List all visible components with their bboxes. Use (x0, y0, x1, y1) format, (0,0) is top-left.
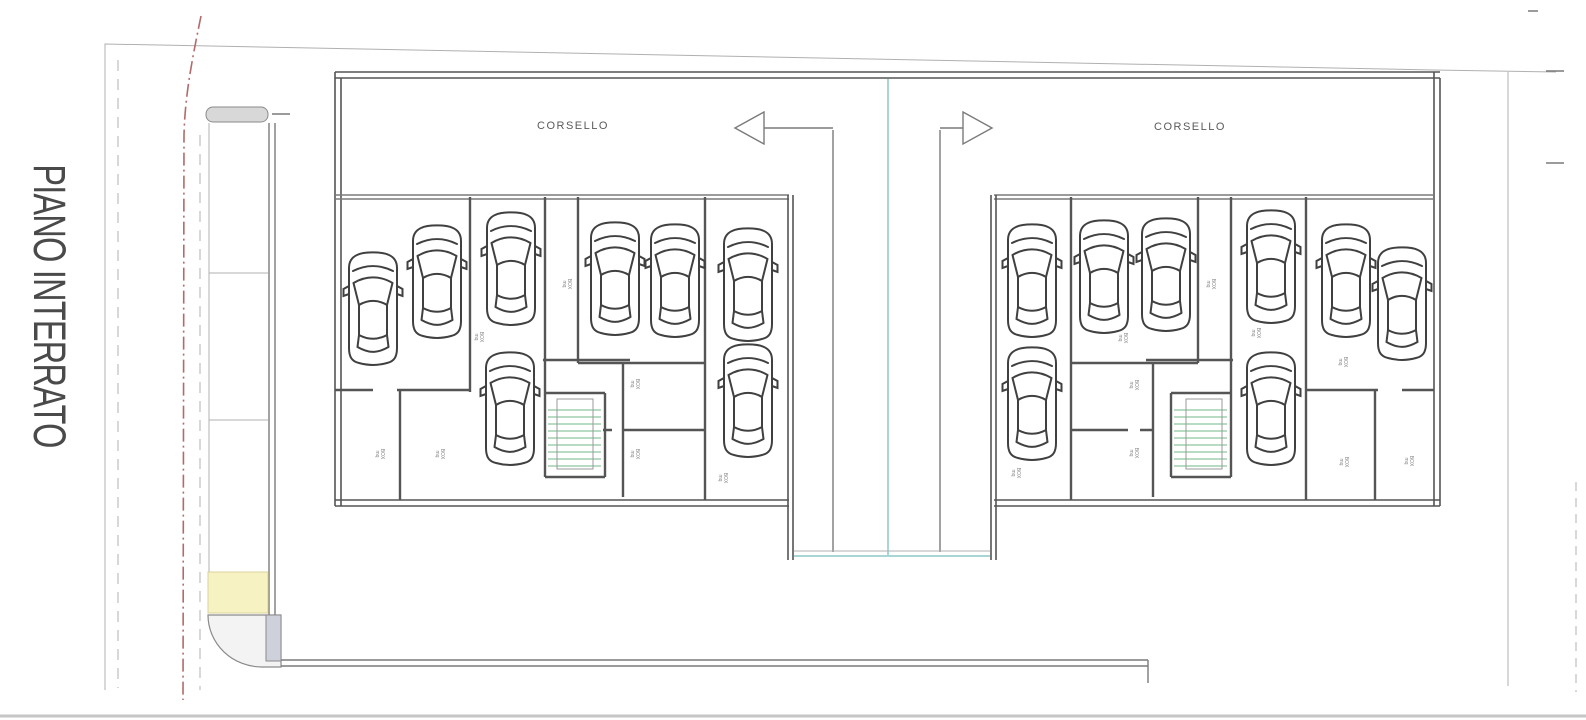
parked-car (408, 225, 467, 338)
parking-box-label: BOXmq (1338, 451, 1348, 473)
floor-plan-drawing (0, 0, 1586, 720)
parked-car (344, 252, 403, 365)
parking-box-label: BOXmq (1337, 351, 1347, 373)
parked-car (1242, 352, 1301, 465)
central-ramp (735, 79, 996, 560)
yellow-area (208, 572, 268, 613)
parking-box-label: BOXmq (473, 326, 483, 348)
red-dashdot-boundary (183, 16, 201, 700)
staircase-right (1171, 393, 1231, 477)
parked-car (481, 352, 540, 465)
parking-box-label: BOXmq (1010, 462, 1020, 484)
ramp-centerline (794, 79, 990, 556)
parked-car (719, 344, 778, 457)
parked-car (1242, 210, 1301, 323)
parked-car (719, 228, 778, 341)
parked-car (1075, 220, 1134, 333)
parked-car (586, 222, 645, 335)
floorplan-canvas: PIANO INTERRATO CORSELLO CORSELLO BOXmqB… (0, 0, 1586, 720)
parked-car (1317, 224, 1376, 337)
ramp-arrow-left (735, 112, 833, 144)
parking-box-label: BOXmq (1250, 322, 1260, 344)
strip-top-bar (206, 107, 268, 122)
left-retaining-strip (206, 107, 1148, 683)
parking-box-label: BOXmq (1128, 374, 1138, 396)
staircase-left (545, 393, 605, 477)
parking-box-label: BOXmq (434, 443, 444, 465)
parked-car (1003, 224, 1062, 337)
page-title: PIANO INTERRATO (25, 148, 75, 465)
road-edge (281, 660, 1148, 683)
parking-box-label: BOXmq (1128, 442, 1138, 464)
parking-box-label: BOXmq (561, 273, 571, 295)
corner-pier (266, 615, 281, 661)
ramp-arrow-right (940, 112, 992, 144)
aisle-label-right: CORSELLO (1130, 121, 1250, 133)
parked-car (1003, 347, 1062, 460)
dimension-ticks (1528, 11, 1564, 163)
parking-box-label: BOXmq (1205, 273, 1215, 295)
parking-box-label: BOXmq (1403, 450, 1413, 472)
parking-row-front-wall (335, 195, 1434, 199)
parking-box-label: BOXmq (1117, 327, 1127, 349)
parking-box-label: BOXmq (629, 373, 639, 395)
cars-right-block (1003, 210, 1432, 465)
aisle-label-left: CORSELLO (513, 120, 633, 132)
parking-box-label: BOXmq (629, 443, 639, 465)
parking-box-label: BOXmq (717, 467, 727, 489)
parked-car (482, 212, 541, 325)
parked-car (1373, 247, 1432, 360)
parked-car (646, 224, 705, 337)
left-block-walls (335, 197, 705, 500)
parking-box-label: BOXmq (374, 443, 384, 465)
parked-car (1137, 218, 1196, 331)
cars-left-block (344, 212, 778, 465)
